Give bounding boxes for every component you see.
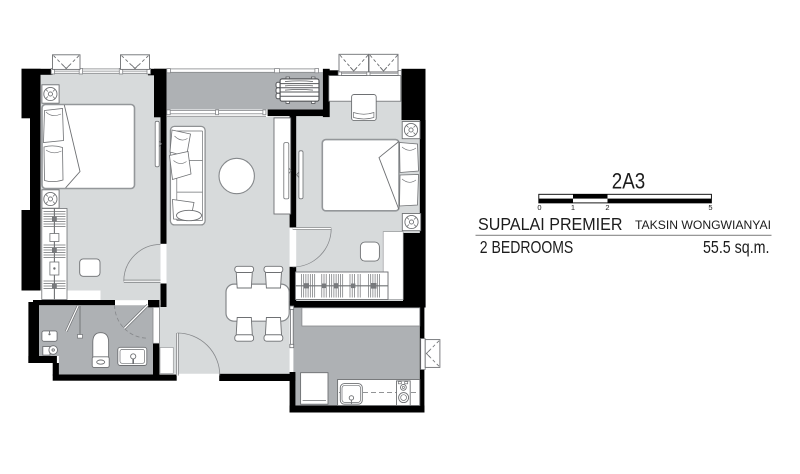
svg-text:TAKSIN WONGWIANYAI: TAKSIN WONGWIANYAI — [635, 218, 771, 232]
svg-text:2: 2 — [605, 203, 609, 212]
svg-text:0: 0 — [537, 203, 541, 212]
svg-text:2A3: 2A3 — [612, 169, 646, 194]
svg-text:1: 1 — [571, 203, 575, 212]
svg-text:SUPALAI PREMIER: SUPALAI PREMIER — [478, 214, 623, 234]
svg-text:5: 5 — [708, 203, 712, 212]
svg-text:2 BEDROOMS: 2 BEDROOMS — [480, 237, 574, 257]
svg-text:55.5 sq.m.: 55.5 sq.m. — [703, 237, 770, 257]
